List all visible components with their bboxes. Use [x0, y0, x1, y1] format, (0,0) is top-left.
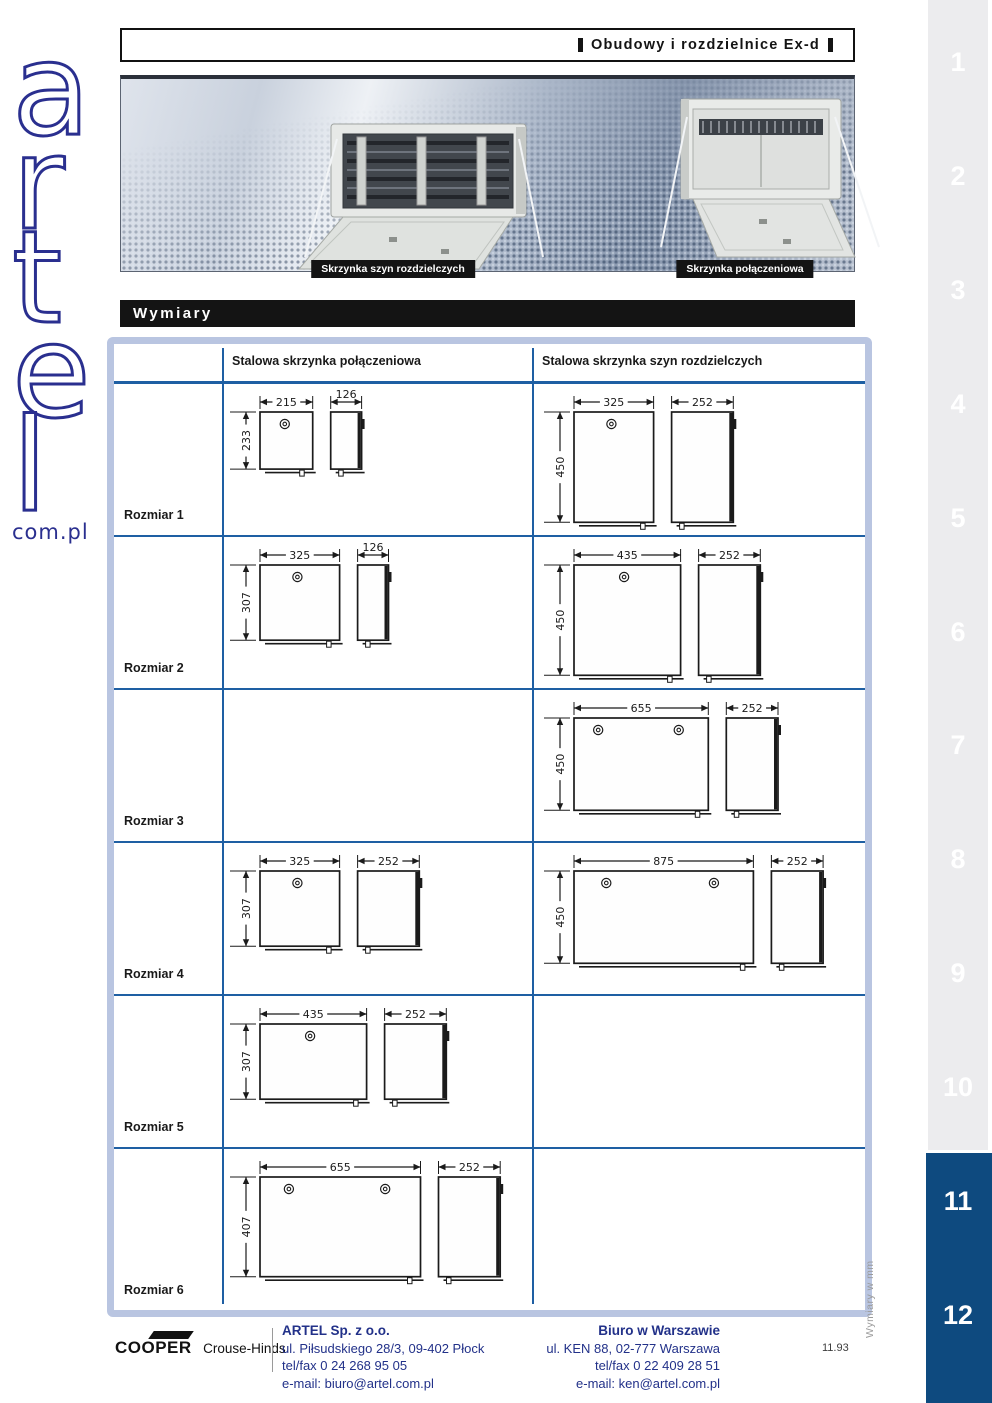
dimension-drawing-right-row4: 875252450: [538, 847, 836, 979]
svg-text:450: 450: [554, 754, 567, 775]
company-street: ul. Piłsudskiego 28/3, 09-402 Płock: [282, 1340, 484, 1358]
section-tab-6: 6: [928, 617, 988, 647]
section-tab-4: 4: [928, 389, 988, 419]
dimension-drawing-left-row6: 655252407: [224, 1153, 513, 1292]
svg-text:252: 252: [459, 1161, 480, 1174]
row-separator: [114, 841, 865, 843]
section-title-bar: Wymiary: [120, 300, 855, 327]
page-title: Obudowy i rozdzielnice Ex-d: [591, 37, 820, 53]
section-tab-5: 5: [928, 503, 988, 533]
dimension-drawing-right-row3: 655252450: [538, 694, 790, 826]
brand-crouse-hinds: Crouse-Hinds: [203, 1341, 286, 1356]
svg-text:126: 126: [336, 388, 357, 401]
artel-logo: artel: [12, 44, 91, 514]
svg-text:435: 435: [617, 549, 638, 562]
photo-caption-junction-box: Skrzynka połączeniowa: [676, 260, 813, 278]
svg-text:450: 450: [554, 610, 567, 631]
header-bar-icon: [578, 38, 583, 52]
row-separator: [114, 994, 865, 996]
row-label-2: Rozmiar 2: [124, 661, 184, 675]
svg-text:252: 252: [378, 855, 399, 868]
svg-text:435: 435: [303, 1008, 324, 1021]
brand-cooper: COOPER: [115, 1338, 192, 1357]
dimensions-table: Stalowa skrzynka połączeniowa Stalowa sk…: [107, 337, 872, 1317]
svg-text:325: 325: [289, 855, 310, 868]
artel-domain: com.pl: [12, 520, 89, 544]
svg-text:325: 325: [603, 396, 624, 409]
svg-text:450: 450: [554, 907, 567, 928]
header-rule: [114, 381, 865, 384]
dimension-drawing-left-row1: 215126233: [224, 388, 374, 485]
product-photo-banner: Skrzynka szyn rozdzielczych Skrzynka poł…: [120, 75, 855, 272]
row-separator: [114, 688, 865, 690]
dimension-drawing-left-row4: 325252307: [224, 847, 432, 962]
svg-text:215: 215: [276, 396, 297, 409]
section-tab-11-active: 11: [928, 1186, 988, 1216]
section-tab-7: 7: [928, 730, 988, 760]
row-label-5: Rozmiar 5: [124, 1120, 184, 1134]
svg-text:307: 307: [240, 592, 253, 613]
svg-text:325: 325: [289, 549, 310, 562]
column-header-busbar-box: Stalowa skrzynka szyn rozdzielczych: [542, 354, 762, 368]
svg-text:307: 307: [240, 898, 253, 919]
section-tab-12-active: 12: [928, 1300, 988, 1330]
office-email: e-mail: ken@artel.com.pl: [480, 1375, 720, 1393]
cooper-swoosh-icon: [148, 1331, 194, 1339]
section-tab-10: 10: [928, 1072, 988, 1102]
svg-text:655: 655: [631, 702, 652, 715]
svg-text:126: 126: [363, 541, 384, 554]
enclosure-junction-illustration: [641, 87, 901, 267]
company-name: ARTEL Sp. z o.o.: [282, 1322, 484, 1340]
dimension-drawing-left-row2: 325126307: [224, 541, 401, 656]
footer-divider: [272, 1328, 273, 1372]
page-number: 11.93: [822, 1342, 849, 1354]
row-label-6: Rozmiar 6: [124, 1283, 184, 1297]
dimension-drawing-right-row2: 435252450: [538, 541, 773, 691]
svg-text:233: 233: [240, 430, 253, 451]
section-tab-1: 1: [928, 47, 988, 77]
svg-text:252: 252: [742, 702, 763, 715]
photo-caption-busbar-box: Skrzynka szyn rozdzielczych: [311, 260, 475, 278]
enclosure-busbar-illustration: [271, 99, 591, 274]
office-name: Biuro w Warszawie: [480, 1322, 720, 1340]
cooper-crouse-hinds-logo: COOPER Crouse-Hinds: [115, 1338, 286, 1358]
row-label-1: Rozmiar 1: [124, 508, 184, 522]
row-separator: [114, 1147, 865, 1149]
svg-text:450: 450: [554, 457, 567, 478]
office-street: ul. KEN 88, 02-777 Warszawa: [480, 1340, 720, 1358]
dimension-drawing-right-row1: 325252450: [538, 388, 746, 538]
section-tab-2: 2: [928, 161, 988, 191]
company-telfax: tel/fax 0 24 268 95 05: [282, 1357, 484, 1375]
page-header: Obudowy i rozdzielnice Ex-d: [120, 28, 855, 62]
svg-text:655: 655: [330, 1161, 351, 1174]
row-separator: [114, 535, 865, 537]
office-telfax: tel/fax 0 22 409 28 51: [480, 1357, 720, 1375]
svg-text:252: 252: [719, 549, 740, 562]
company-email: e-mail: biuro@artel.com.pl: [282, 1375, 484, 1393]
svg-text:252: 252: [692, 396, 713, 409]
section-title: Wymiary: [133, 305, 213, 322]
catalog-page: artel com.pl Obudowy i rozdzielnice Ex-d: [0, 0, 992, 1403]
column-divider: [532, 348, 534, 1304]
section-tab-9: 9: [928, 958, 988, 988]
svg-text:252: 252: [405, 1008, 426, 1021]
section-tab-8: 8: [928, 844, 988, 874]
svg-text:875: 875: [653, 855, 674, 868]
svg-text:407: 407: [240, 1216, 253, 1237]
header-bar-icon: [828, 38, 833, 52]
section-tab-3: 3: [928, 275, 988, 305]
footer-office-address: Biuro w Warszawie ul. KEN 88, 02-777 War…: [480, 1322, 720, 1392]
footer-company-address: ARTEL Sp. z o.o. ul. Piłsudskiego 28/3, …: [282, 1322, 484, 1392]
svg-text:252: 252: [787, 855, 808, 868]
row-label-4: Rozmiar 4: [124, 967, 184, 981]
column-header-junction-box: Stalowa skrzynka połączeniowa: [232, 354, 421, 368]
svg-text:307: 307: [240, 1051, 253, 1072]
dimension-drawing-left-row5: 435252307: [224, 1000, 459, 1115]
row-label-3: Rozmiar 3: [124, 814, 184, 828]
